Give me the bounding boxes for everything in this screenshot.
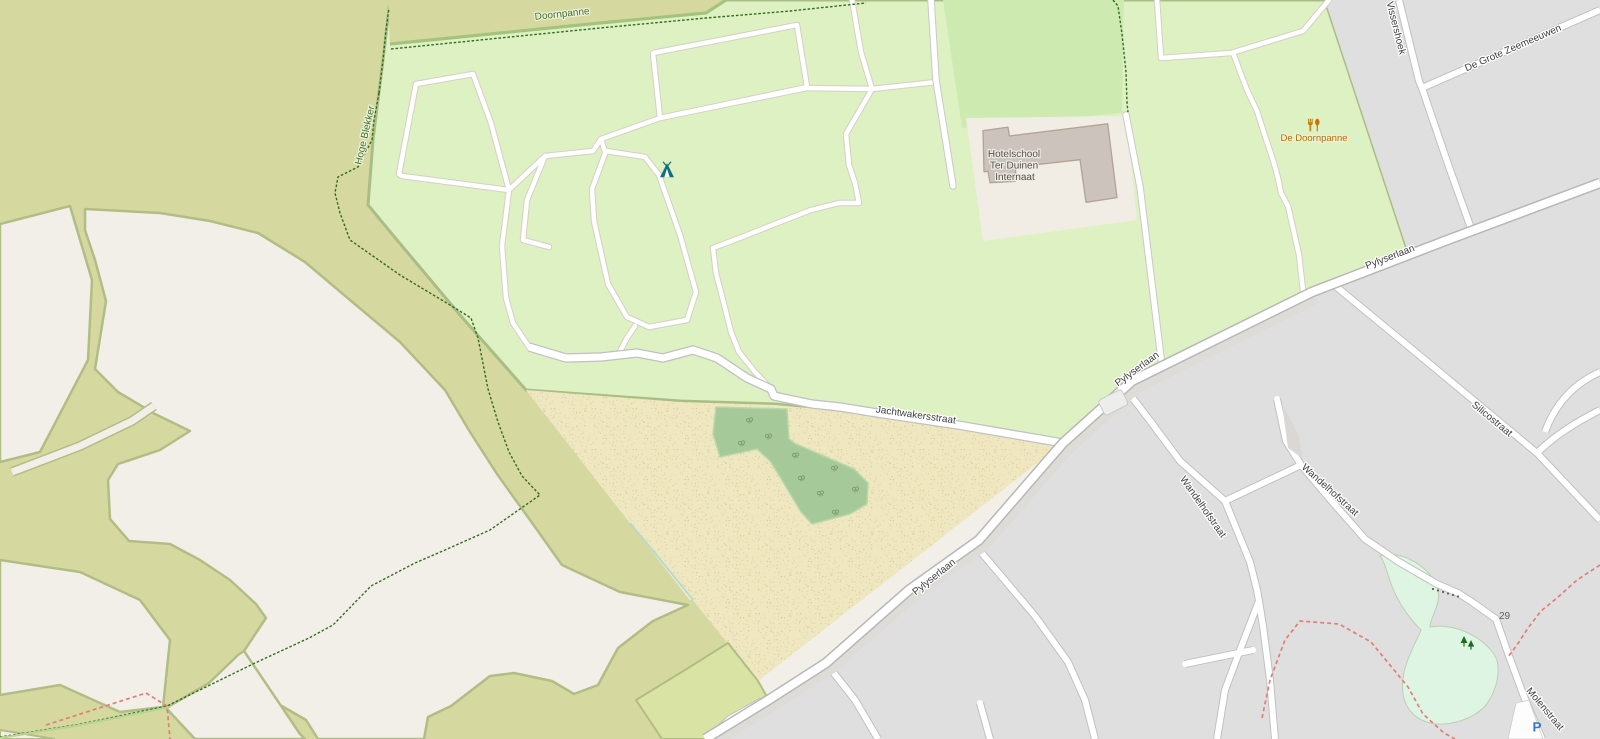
svg-text:Hotelschool: Hotelschool bbox=[988, 149, 1040, 160]
svg-text:Internaat: Internaat bbox=[995, 172, 1035, 183]
svg-text:Ter Duinen: Ter Duinen bbox=[990, 161, 1038, 172]
svg-text:P: P bbox=[1532, 720, 1541, 735]
svg-text:29: 29 bbox=[1499, 611, 1511, 622]
svg-text:De Doornpanne: De Doornpanne bbox=[1280, 133, 1347, 144]
